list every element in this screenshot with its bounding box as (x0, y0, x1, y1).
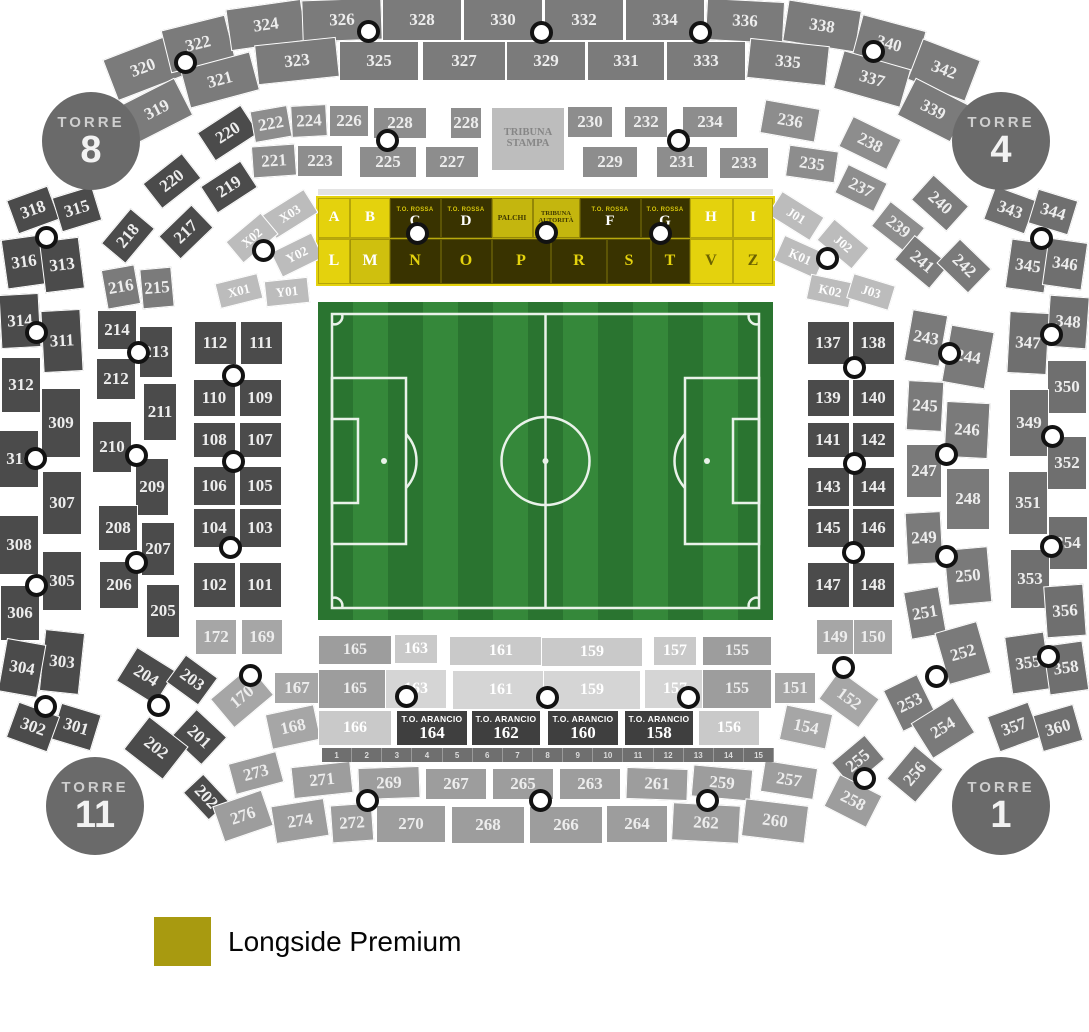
seat-section-327[interactable]: 327 (422, 41, 506, 81)
seat-section-151[interactable]: 151 (774, 672, 816, 704)
seat-section-202[interactable]: 202 (123, 716, 188, 780)
seat-section-212[interactable]: 212 (96, 358, 136, 400)
seat-section-308[interactable]: 308 (0, 515, 39, 575)
seat-section-159[interactable]: 159 (543, 670, 641, 710)
seat-section-311[interactable]: 311 (40, 309, 83, 373)
marker-dot (649, 222, 672, 245)
marker-dot (689, 21, 712, 44)
seat-section-105[interactable]: 105 (239, 466, 282, 506)
marker-dot (530, 21, 553, 44)
marker-dot (535, 221, 558, 244)
tower-name: TORRE (57, 114, 124, 131)
seat-section-j03[interactable]: J03 (846, 273, 896, 311)
seat-section-162[interactable]: T.O. ARANCIO162 (471, 710, 541, 746)
tower-number: 11 (75, 796, 115, 834)
seat-section-l[interactable]: L (318, 239, 350, 284)
seat-section-208[interactable]: 208 (98, 505, 138, 551)
tower-name: TORRE (967, 114, 1034, 131)
seat-section-145[interactable]: 145 (807, 508, 850, 548)
seat-section-350[interactable]: 350 (1047, 360, 1087, 414)
seat-section-a[interactable]: A (318, 198, 350, 238)
seat-section-211[interactable]: 211 (143, 383, 177, 441)
row-number-cell: 9 (563, 748, 593, 762)
marker-dot (25, 321, 48, 344)
seat-section-150[interactable]: 150 (853, 619, 893, 655)
seat-section-263[interactable]: 263 (559, 768, 621, 800)
row-number-cell: 4 (412, 748, 442, 762)
seat-section-163[interactable]: 163 (394, 634, 438, 664)
seat-section-o[interactable]: O (441, 239, 492, 284)
row-number-cell: 13 (684, 748, 714, 762)
seat-section-235[interactable]: 235 (785, 145, 839, 184)
seat-section-305[interactable]: 305 (42, 551, 82, 611)
row-number-cell: 1 (322, 748, 352, 762)
seat-section-j01[interactable]: J01 (767, 191, 824, 241)
seat-section-137[interactable]: 137 (807, 321, 850, 365)
football-pitch (318, 302, 773, 620)
seat-section-266[interactable]: 266 (529, 806, 603, 844)
seat-section-227[interactable]: 227 (425, 146, 479, 178)
section-sub-label: T.O. ARANCIO (553, 715, 614, 724)
seat-section-234[interactable]: 234 (682, 106, 738, 138)
marker-dot (843, 356, 866, 379)
seat-section-303[interactable]: 303 (39, 629, 85, 695)
seat-section-233[interactable]: 233 (719, 147, 769, 179)
row-number-cell: 7 (503, 748, 533, 762)
marker-dot (925, 665, 948, 688)
seat-section-219[interactable]: 219 (200, 161, 258, 214)
marker-dot (1037, 645, 1060, 668)
seat-section-160[interactable]: T.O. ARANCIO160 (547, 710, 619, 746)
seat-section-220[interactable]: 220 (142, 153, 201, 209)
seat-row-number-strip: 123456789101112131415 (322, 748, 774, 762)
seat-section-167[interactable]: 167 (274, 672, 320, 704)
seat-section-166[interactable]: 166 (318, 710, 392, 746)
section-label: 162 (493, 724, 519, 741)
row-number-cell: 11 (623, 748, 653, 762)
seat-section-157[interactable]: 157 (653, 636, 697, 666)
seat-section-236[interactable]: 236 (759, 99, 820, 142)
seat-section-218[interactable]: 218 (101, 208, 155, 264)
seat-section-159[interactable]: 159 (541, 637, 643, 667)
seat-section-z[interactable]: Z (733, 239, 773, 284)
section-label: F (605, 214, 614, 229)
seat-section-229[interactable]: 229 (582, 146, 638, 178)
seat-section-215[interactable]: 215 (139, 267, 174, 310)
marker-dot (938, 342, 961, 365)
stadium-seat-map: 3203223243263283303323343363383403423193… (0, 0, 1089, 1032)
marker-dot (1041, 425, 1064, 448)
seat-section-149[interactable]: 149 (816, 619, 854, 655)
marker-dot (25, 574, 48, 597)
seat-section-s[interactable]: S (607, 239, 651, 284)
tower-name: TORRE (61, 779, 128, 796)
seat-section-172[interactable]: 172 (195, 619, 237, 655)
seat-section-m[interactable]: M (350, 239, 390, 284)
marker-dot (24, 447, 47, 470)
section-label: 160 (570, 724, 596, 741)
section-sub-label: T.O. ROSSA (591, 207, 628, 213)
seat-section-248[interactable]: 248 (946, 468, 990, 530)
marker-dot (862, 40, 885, 63)
seat-section-p[interactable]: P (492, 239, 551, 284)
row-number-cell: 10 (593, 748, 623, 762)
marker-dot (529, 789, 552, 812)
seat-section-228[interactable]: 228 (450, 107, 482, 139)
seat-section-y01[interactable]: Y01 (264, 277, 310, 307)
seat-section-161[interactable]: 161 (449, 636, 553, 666)
seat-section-204[interactable]: 204 (116, 647, 176, 705)
seat-section-360[interactable]: 360 (1033, 704, 1084, 752)
seat-section-165[interactable]: 165 (318, 669, 392, 709)
row-number-cell: 2 (352, 748, 382, 762)
marker-dot (677, 686, 700, 709)
marker-dot (222, 364, 245, 387)
marker-dot (219, 536, 242, 559)
seat-section-165[interactable]: 165 (318, 635, 392, 665)
marker-dot (816, 247, 839, 270)
seat-section-161[interactable]: 161 (452, 670, 550, 710)
seat-section-112[interactable]: 112 (194, 321, 237, 365)
seat-section-k02[interactable]: K02 (806, 274, 854, 309)
seat-section-332[interactable]: 332 (544, 0, 624, 41)
marker-dot (832, 656, 855, 679)
seat-section-n[interactable]: N (390, 239, 441, 284)
tower-number: 4 (990, 131, 1011, 169)
seat-section-271[interactable]: 271 (290, 761, 353, 799)
marker-dot (125, 444, 148, 467)
marker-dot (935, 545, 958, 568)
tower-number: 1 (990, 796, 1011, 834)
tower-1: TORRE1 (952, 757, 1050, 855)
seat-section-r[interactable]: R (551, 239, 607, 284)
seat-section-325[interactable]: 325 (339, 41, 419, 81)
section-label: 158 (646, 724, 672, 741)
marker-dot (147, 694, 170, 717)
section-sub-label: T.O. ARANCIO (629, 715, 690, 724)
seat-section-103[interactable]: 103 (239, 508, 282, 548)
seat-section-143[interactable]: 143 (807, 467, 850, 507)
seat-section-101[interactable]: 101 (239, 562, 282, 608)
tower-name: TORRE (967, 779, 1034, 796)
seat-section-242[interactable]: 242 (936, 238, 991, 293)
seat-section-260[interactable]: 260 (741, 798, 809, 844)
seat-section-h[interactable]: H (690, 198, 733, 238)
section-sub-label: T.O. ARANCIO (476, 715, 537, 724)
seat-section-267[interactable]: 267 (425, 768, 487, 800)
marker-dot (239, 664, 262, 687)
seat-section-164[interactable]: T.O. ARANCIO164 (396, 710, 468, 746)
section-sub-label: T.O. ROSSA (396, 207, 433, 213)
seat-section-237[interactable]: 237 (834, 164, 888, 212)
seat-section-i[interactable]: I (733, 198, 773, 238)
seat-section-323[interactable]: 323 (254, 37, 340, 85)
marker-dot (667, 129, 690, 152)
seat-section-328[interactable]: 328 (382, 0, 462, 41)
seat-section-b[interactable]: B (350, 198, 390, 238)
marker-dot (34, 695, 57, 718)
marker-dot (356, 789, 379, 812)
row-number-cell: 14 (714, 748, 744, 762)
marker-dot (406, 222, 429, 245)
seat-section-329[interactable]: 329 (506, 41, 586, 81)
section-sub-label: T.O. ROSSA (646, 207, 683, 213)
row-number-cell: 3 (382, 748, 412, 762)
marker-dot (853, 767, 876, 790)
seat-section-315[interactable]: 315 (52, 186, 103, 233)
marker-dot (357, 20, 380, 43)
marker-dot (842, 541, 865, 564)
seat-section-357[interactable]: 357 (987, 702, 1041, 753)
seat-section-223[interactable]: 223 (297, 145, 343, 177)
seat-section-v[interactable]: V (690, 239, 733, 284)
seat-section-palchi[interactable]: PALCHI (492, 198, 533, 238)
section-sub-label: T.O. ARANCIO (402, 715, 463, 724)
marker-dot (696, 789, 719, 812)
row-number-cell: 12 (654, 748, 684, 762)
marker-dot (843, 452, 866, 475)
seat-section-216[interactable]: 216 (101, 264, 141, 309)
seat-section-f[interactable]: T.O. ROSSAF (580, 198, 641, 238)
legend-swatch-longside-premium (154, 917, 211, 966)
seat-section-301[interactable]: 301 (50, 703, 101, 752)
seat-section-268[interactable]: 268 (451, 806, 525, 844)
seat-section-154[interactable]: 154 (779, 704, 833, 749)
seat-section-273[interactable]: 273 (228, 751, 285, 795)
seat-section-148[interactable]: 148 (852, 562, 895, 608)
seat-section-140[interactable]: 140 (852, 379, 895, 417)
seat-section-257[interactable]: 257 (760, 760, 818, 800)
marker-dot (1040, 323, 1063, 346)
seat-section-245[interactable]: 245 (906, 380, 945, 432)
seat-section-107[interactable]: 107 (239, 422, 282, 458)
seat-section-d[interactable]: T.O. ROSSAD (441, 198, 492, 238)
seat-section-111[interactable]: 111 (240, 321, 283, 365)
seat-section-232[interactable]: 232 (624, 106, 668, 138)
seat-section-169[interactable]: 169 (241, 619, 283, 655)
row-number-cell: 8 (533, 748, 563, 762)
seat-section-221[interactable]: 221 (251, 144, 297, 179)
seat-section-163[interactable]: 163 (385, 669, 447, 709)
seat-section-217[interactable]: 217 (158, 205, 213, 260)
seat-section-139[interactable]: 139 (807, 379, 850, 417)
seat-section-230[interactable]: 230 (567, 106, 613, 138)
seat-section-210[interactable]: 210 (92, 421, 132, 473)
tower-11: TORRE11 (46, 757, 144, 855)
seat-section-224[interactable]: 224 (290, 104, 328, 138)
legend: Longside Premium (154, 917, 461, 966)
seat-section-351[interactable]: 351 (1008, 471, 1048, 535)
seat-section-261[interactable]: 261 (625, 767, 688, 801)
walkway-strip (318, 189, 773, 195)
seat-section-168[interactable]: 168 (265, 704, 321, 750)
seat-section-t[interactable]: T (651, 239, 690, 284)
marker-dot (1040, 535, 1063, 558)
marker-dot (376, 129, 399, 152)
seat-section-264[interactable]: 264 (606, 805, 668, 843)
row-number-cell: 6 (473, 748, 503, 762)
section-label: 164 (419, 724, 445, 741)
seat-section-356[interactable]: 356 (1043, 584, 1087, 639)
seat-section-147[interactable]: 147 (807, 562, 850, 608)
seat-section-109[interactable]: 109 (239, 379, 282, 417)
marker-dot (395, 685, 418, 708)
marker-dot (222, 450, 245, 473)
seat-section-335[interactable]: 335 (746, 38, 830, 86)
seat-section-tribuna-stampa[interactable]: TRIBUNA STAMPA (491, 107, 565, 171)
section-sub-label: T.O. ROSSA (447, 207, 484, 213)
marker-dot (252, 239, 275, 262)
seat-section-209[interactable]: 209 (135, 458, 169, 516)
seat-section-307[interactable]: 307 (42, 471, 82, 535)
seat-section-349[interactable]: 349 (1009, 389, 1049, 457)
row-number-cell: 15 (744, 748, 774, 762)
seat-section-141[interactable]: 141 (807, 422, 850, 458)
marker-dot (127, 341, 150, 364)
seat-section-343[interactable]: 343 (983, 186, 1037, 235)
seat-section-331[interactable]: 331 (587, 41, 665, 81)
seat-section-309[interactable]: 309 (41, 388, 81, 458)
pitch-markings (318, 302, 773, 620)
legend-label: Longside Premium (228, 926, 461, 958)
seat-section-x01[interactable]: X01 (215, 273, 264, 309)
seat-section-205[interactable]: 205 (146, 584, 180, 638)
marker-dot (1030, 227, 1053, 250)
seat-section-155[interactable]: 155 (702, 669, 772, 709)
marker-dot (125, 551, 148, 574)
seat-section-222[interactable]: 222 (250, 105, 293, 143)
seat-section-333[interactable]: 333 (666, 41, 746, 81)
tower-4: TORRE4 (952, 92, 1050, 190)
seat-section-238[interactable]: 238 (838, 116, 901, 170)
row-number-cell: 5 (443, 748, 473, 762)
seat-section-156[interactable]: 156 (698, 710, 760, 746)
tower-8: TORRE8 (42, 92, 140, 190)
marker-dot (174, 51, 197, 74)
seat-section-158[interactable]: T.O. ARANCIO158 (624, 710, 694, 746)
tower-number: 8 (80, 131, 101, 169)
marker-dot (935, 443, 958, 466)
seat-section-336[interactable]: 336 (705, 0, 785, 44)
seat-section-312[interactable]: 312 (1, 357, 41, 413)
marker-dot (35, 226, 58, 249)
seat-section-274[interactable]: 274 (270, 798, 329, 844)
seat-section-226[interactable]: 226 (329, 105, 369, 137)
marker-dot (536, 686, 559, 709)
seat-section-155[interactable]: 155 (702, 636, 772, 666)
seat-section-102[interactable]: 102 (193, 562, 236, 608)
seat-section-270[interactable]: 270 (376, 805, 446, 843)
section-label: D (461, 214, 472, 229)
